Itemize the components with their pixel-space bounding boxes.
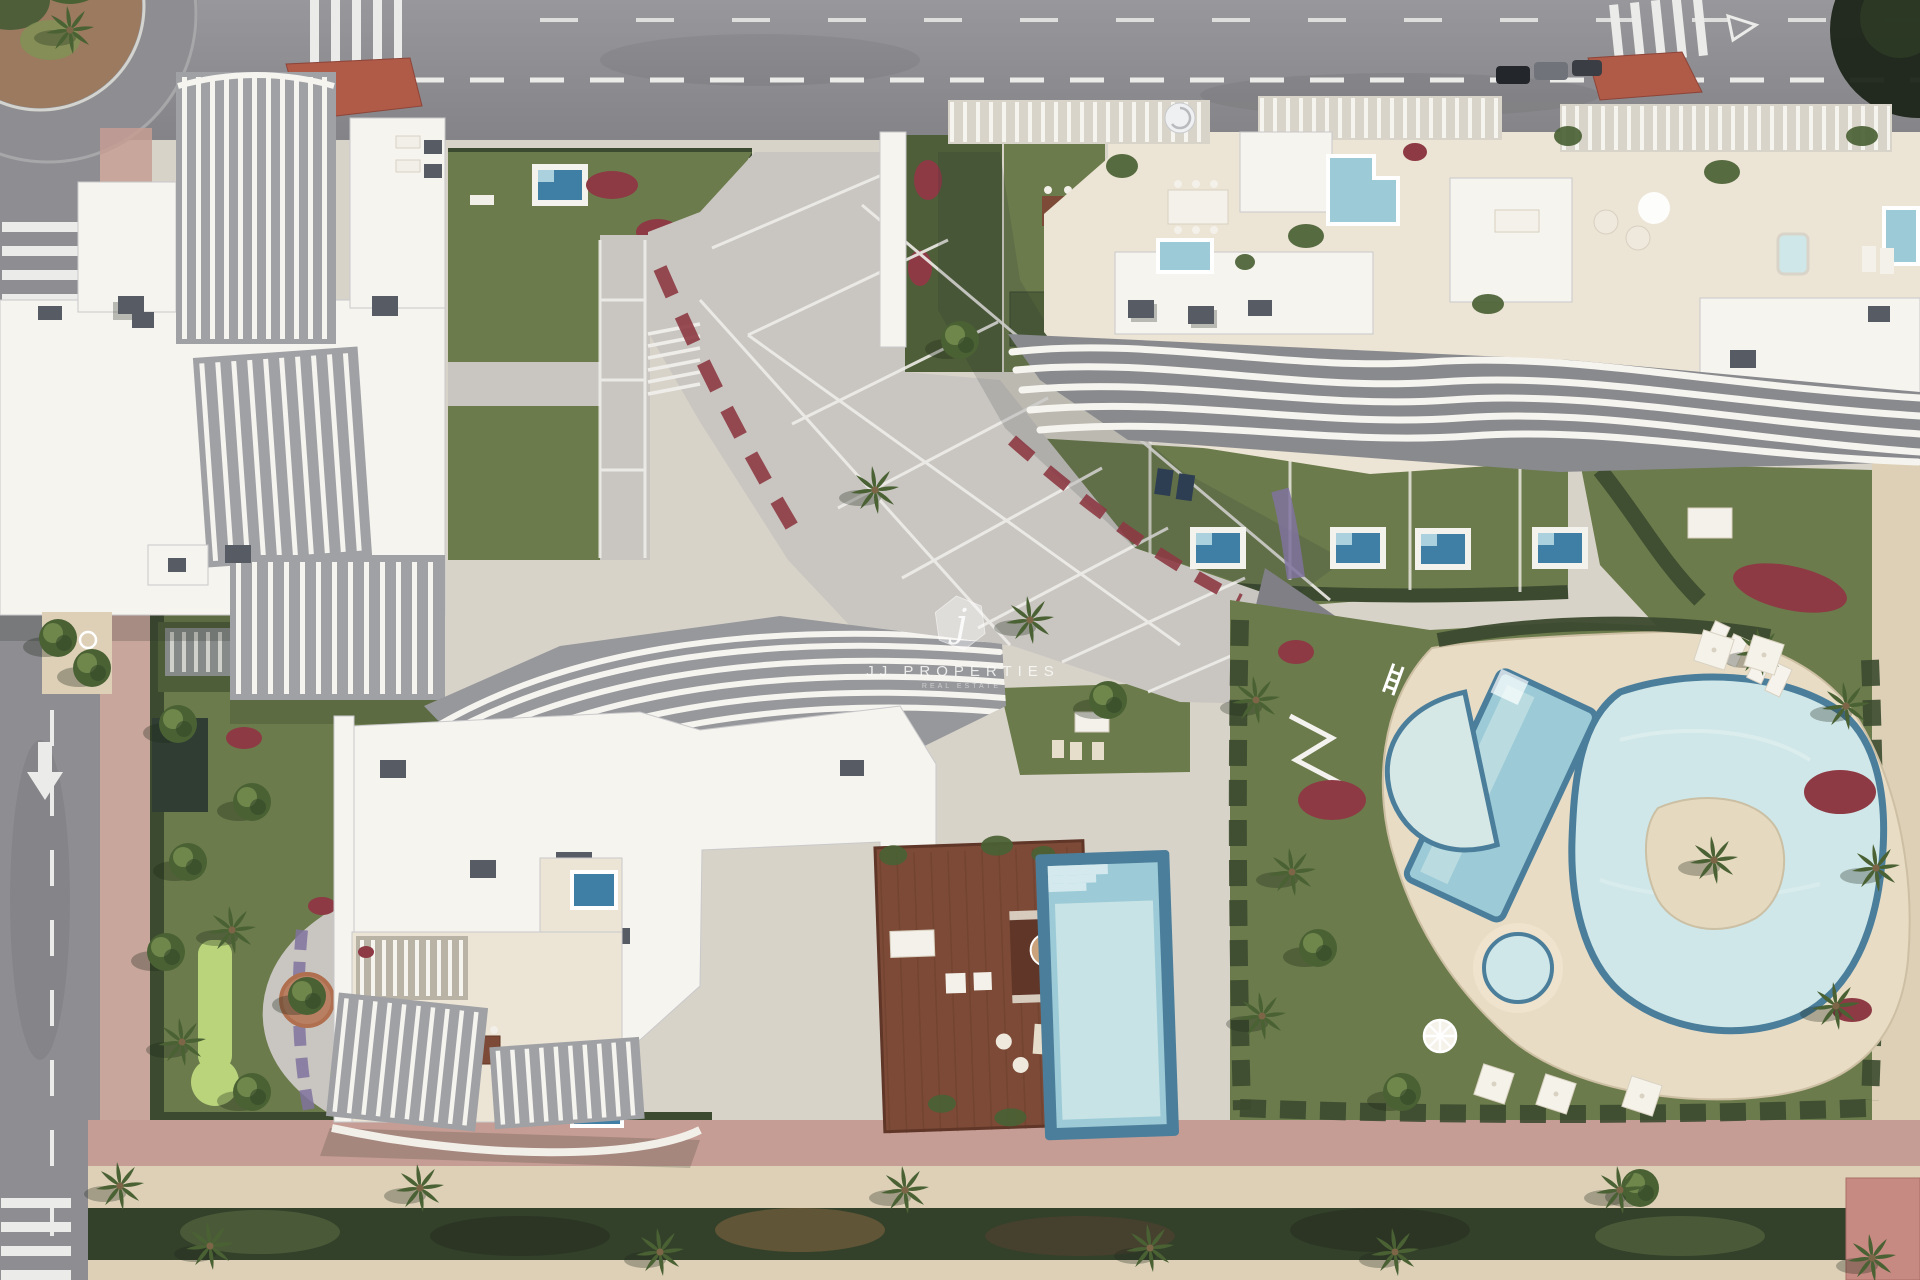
parasol [1424, 1020, 1456, 1052]
louver-wing-south [230, 555, 445, 700]
jacuzzi [1778, 234, 1808, 274]
garden-plunge-pool [532, 164, 588, 206]
plunge-pool [572, 872, 616, 908]
spa-pool [1484, 934, 1552, 1002]
aerial-render-residential-complex: j JJ PROPERTIES REAL ESTATE [0, 0, 1920, 1280]
terrace-pool [1158, 240, 1212, 272]
plunge-pool [1330, 527, 1386, 569]
rooftop-pool [1035, 850, 1179, 1141]
louver-wing-ne [176, 72, 336, 344]
scene-canvas [0, 0, 1920, 1280]
louver-wing-se [193, 346, 372, 567]
louver-fan [489, 1037, 644, 1129]
traffic-island [1588, 52, 1702, 100]
plunge-pool [1532, 527, 1588, 569]
pool-complex [1220, 600, 1910, 1120]
plunge-pool [1190, 527, 1246, 569]
putting-green [198, 940, 232, 1070]
plunge-pool [1415, 528, 1471, 570]
louver-fan [326, 993, 488, 1132]
